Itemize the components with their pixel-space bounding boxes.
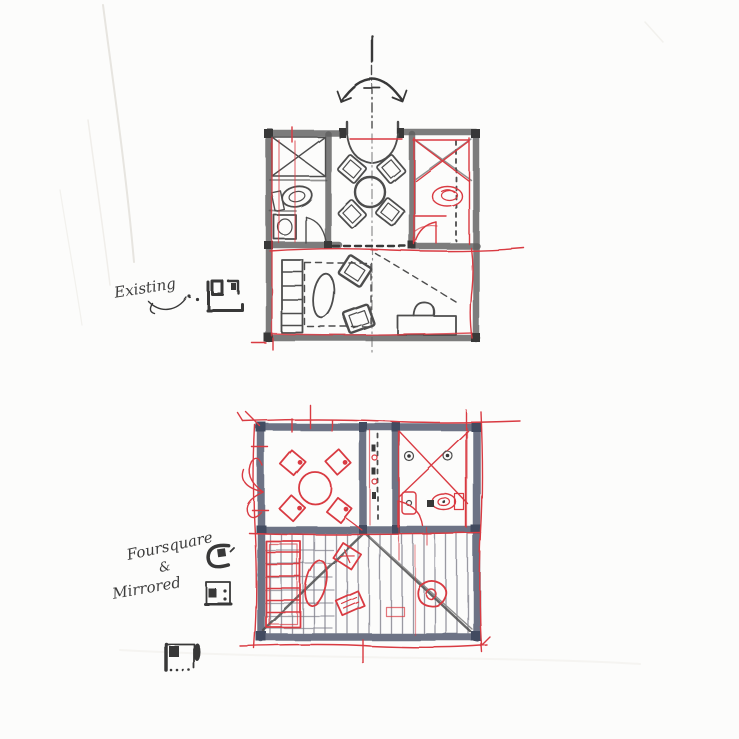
armchair-icon <box>338 255 372 288</box>
existing-floor-plan <box>252 36 524 356</box>
chair-red-icon <box>336 591 364 615</box>
armchair-icon <box>343 304 375 334</box>
chair-red-icon <box>325 449 350 474</box>
toilet-red-icon <box>432 186 462 206</box>
chair-icon <box>375 197 405 226</box>
foursquare-mirrored-floor-plan <box>238 405 520 663</box>
sitting-area <box>282 255 375 334</box>
plan-thumbnail-core-oval-icon <box>166 643 201 671</box>
sink-icon <box>274 215 296 239</box>
corridor-closet <box>370 430 378 525</box>
chair-icon <box>376 154 405 184</box>
sketch-paper: Existing Foursquare & Mirrored <box>0 0 739 739</box>
light-dot-icon <box>405 452 414 461</box>
sketch-canvas <box>0 0 739 739</box>
light-dot-icon <box>444 452 453 461</box>
plan-thumbnail-existing-icon <box>207 281 242 310</box>
chair-red-icon <box>280 450 305 475</box>
plan-thumbnail-core-left-icon <box>205 582 231 604</box>
bed-red-icon <box>266 541 300 627</box>
red-furniture-lower <box>266 541 446 635</box>
chair-red-icon <box>279 495 304 520</box>
plan-thumbnails <box>166 281 242 671</box>
annotation-flourish <box>148 294 199 313</box>
plan-thumbnail-rotated-icon <box>207 544 237 568</box>
toilet-icon <box>271 184 313 212</box>
toilet-red-icon <box>432 494 464 510</box>
paper-crease-marks <box>60 5 663 664</box>
mirror-axis-centerline <box>364 36 380 356</box>
desk-area <box>375 253 458 335</box>
